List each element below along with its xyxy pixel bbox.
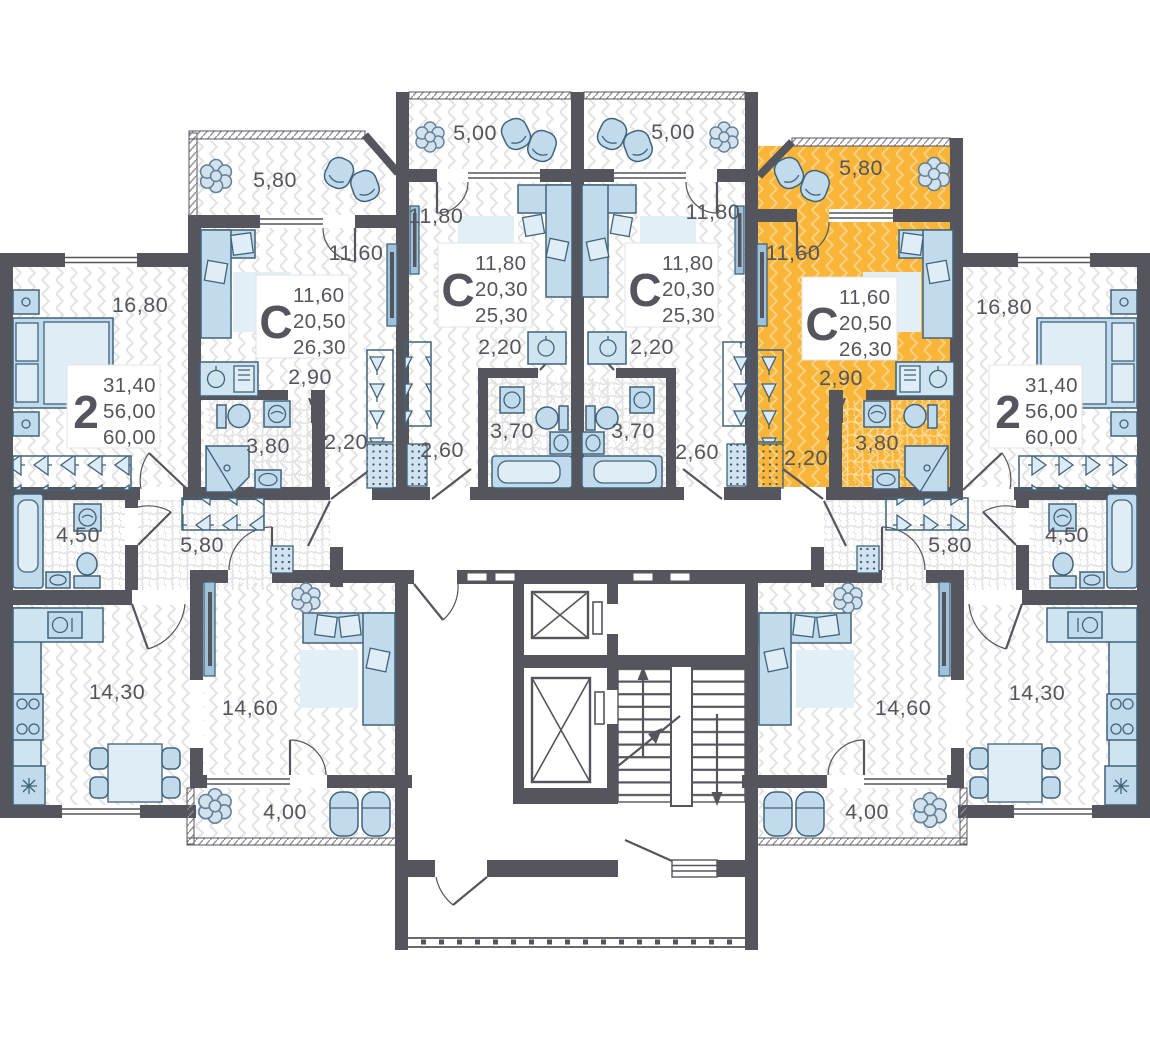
window-corridor: [672, 860, 717, 877]
floorplan-svg: 16,80 4,50 5,80 14,30 14,60 4,00 5,80 11…: [0, 0, 1150, 1040]
apartment-d-hotspot[interactable]: [584, 92, 758, 500]
apartment-b-hotspot[interactable]: [183, 130, 398, 500]
entrance-glazing: [408, 936, 745, 948]
apartment-f-hotspot[interactable]: [810, 253, 1150, 815]
staircase: [618, 666, 745, 806]
floorplan-page: 16,80 4,50 5,80 14,30 14,60 4,00 5,80 11…: [0, 0, 1150, 1040]
apartment-c-hotspot[interactable]: [396, 92, 584, 500]
